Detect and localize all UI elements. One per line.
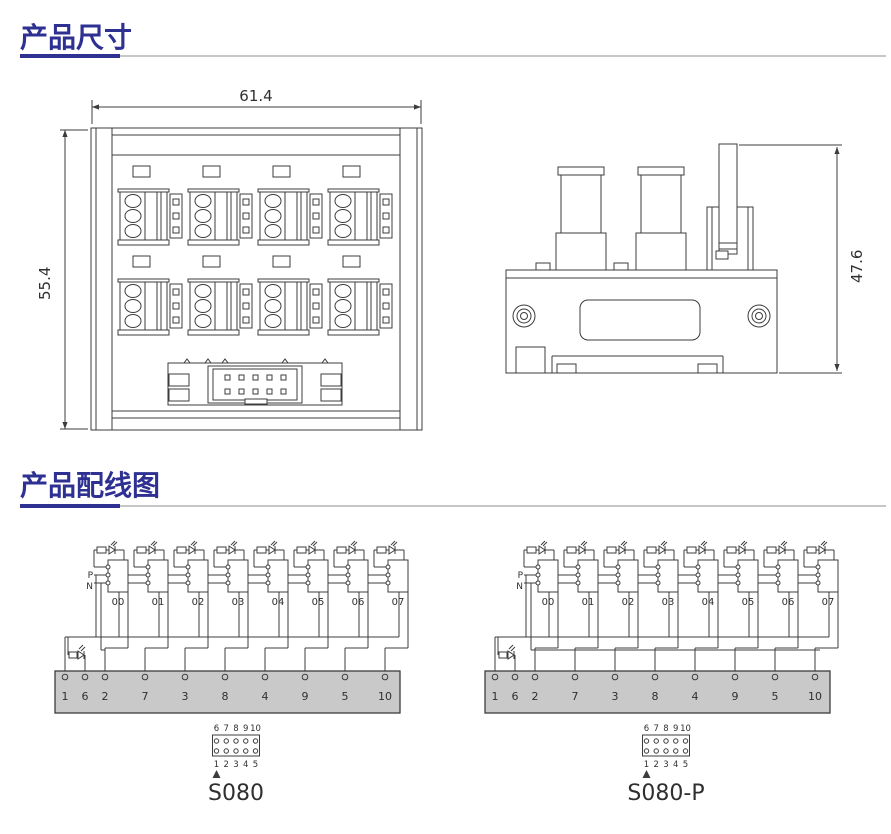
divider-gray-line: [20, 55, 886, 57]
terminal-number: 4: [262, 690, 269, 703]
pin-number-top: 9: [243, 724, 248, 734]
pin-number-top: 8: [663, 724, 668, 734]
pin-number-top: 10: [250, 724, 261, 734]
divider-gray-line: [20, 505, 886, 507]
pin-number-top: 9: [673, 724, 678, 734]
model-label: S080-P: [627, 781, 704, 806]
terminal-number: 3: [612, 690, 619, 703]
dimension-drawings: 61.455.447.6: [0, 80, 891, 460]
terminal-number: 7: [572, 690, 579, 703]
terminal-number: 1: [62, 690, 69, 703]
dimensions-section-title: 产品尺寸: [20, 16, 132, 56]
channel-label: 01: [152, 597, 165, 608]
terminal-number: 9: [732, 690, 739, 703]
datasheet-page: 产品尺寸 61.455.447.6 产品配线图 PN00010203040506…: [0, 0, 891, 834]
terminal-number: 6: [82, 690, 89, 703]
pin-number-top: 6: [214, 724, 219, 734]
pin-number-top: 6: [644, 724, 649, 734]
channel-label: 02: [622, 597, 635, 608]
pin-number-bottom: 3: [663, 760, 668, 770]
channel-label: 02: [192, 597, 205, 608]
p-label: P: [518, 571, 524, 581]
terminal-number: 10: [808, 690, 822, 703]
pin-number-top: 10: [680, 724, 691, 734]
terminal-number: 6: [512, 690, 519, 703]
front-height-dimension: 55.4: [36, 267, 54, 300]
front-width-dimension: 61.4: [239, 87, 272, 105]
section-divider: [20, 504, 886, 508]
channel-label: 04: [272, 597, 285, 608]
n-label: N: [86, 582, 93, 592]
terminal-number: 1: [492, 690, 499, 703]
terminal-number: 2: [102, 690, 109, 703]
terminal-number: 4: [692, 690, 699, 703]
divider-accent-line: [20, 54, 120, 58]
pin-number-bottom: 2: [224, 760, 229, 770]
model-label: S080: [208, 781, 264, 806]
terminal-number: 5: [342, 690, 349, 703]
channel-label: 00: [542, 597, 555, 608]
terminal-number: 3: [182, 690, 189, 703]
channel-label: 07: [822, 597, 835, 608]
n-label: N: [516, 582, 523, 592]
pin-number-top: 7: [224, 724, 229, 734]
channel-label: 05: [742, 597, 755, 608]
channel-label: 01: [582, 597, 595, 608]
pin-number-bottom: 5: [253, 760, 258, 770]
p-label: P: [88, 571, 94, 581]
channel-label: 03: [662, 597, 675, 608]
terminal-number: 8: [652, 690, 659, 703]
terminal-number: 7: [142, 690, 149, 703]
divider-accent-line: [20, 504, 120, 508]
terminal-number: 10: [378, 690, 392, 703]
channel-label: 05: [312, 597, 325, 608]
wiring-section-title: 产品配线图: [20, 464, 160, 504]
channel-label: 07: [392, 597, 405, 608]
channel-label: 00: [112, 597, 125, 608]
pin-number-bottom: 1: [214, 760, 219, 770]
terminal-number: 2: [532, 690, 539, 703]
section-divider: [20, 54, 886, 58]
pin-number-bottom: 3: [233, 760, 238, 770]
terminal-number: 9: [302, 690, 309, 703]
channel-label: 03: [232, 597, 245, 608]
channel-label: 06: [352, 597, 365, 608]
wiring-diagrams: PN00010203040506071627384951061728394105…: [0, 520, 891, 834]
pin-number-top: 8: [233, 724, 238, 734]
pin-number-bottom: 2: [654, 760, 659, 770]
side-height-dimension: 47.6: [848, 250, 866, 283]
pin-number-bottom: 5: [683, 760, 688, 770]
channel-label: 06: [782, 597, 795, 608]
terminal-number: 5: [772, 690, 779, 703]
pin-number-bottom: 1: [644, 760, 649, 770]
pin-number-bottom: 4: [243, 760, 248, 770]
channel-label: 04: [702, 597, 715, 608]
pin-number-top: 7: [654, 724, 659, 734]
terminal-number: 8: [222, 690, 229, 703]
pin-number-bottom: 4: [673, 760, 678, 770]
